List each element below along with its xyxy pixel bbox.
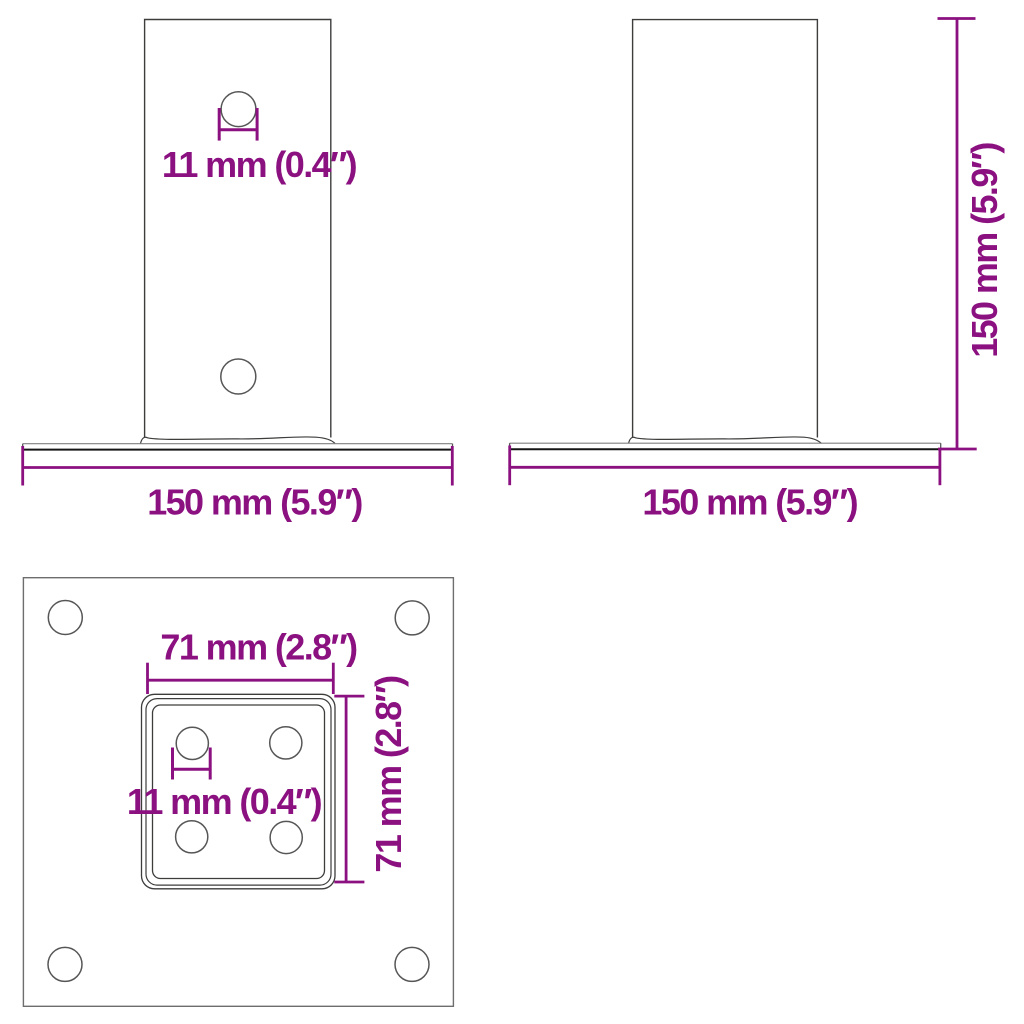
svg-text:71 mm (2.8″): 71 mm (2.8″): [160, 627, 357, 668]
svg-text:71 mm (2.8″): 71 mm (2.8″): [368, 676, 409, 873]
svg-text:150 mm (5.9″): 150 mm (5.9″): [147, 482, 362, 523]
svg-text:11 mm (0.4″): 11 mm (0.4″): [127, 781, 322, 822]
svg-text:11 mm (0.4″): 11 mm (0.4″): [162, 144, 357, 185]
svg-text:150 mm (5.9″): 150 mm (5.9″): [964, 143, 1005, 358]
svg-text:150 mm (5.9″): 150 mm (5.9″): [642, 482, 857, 523]
